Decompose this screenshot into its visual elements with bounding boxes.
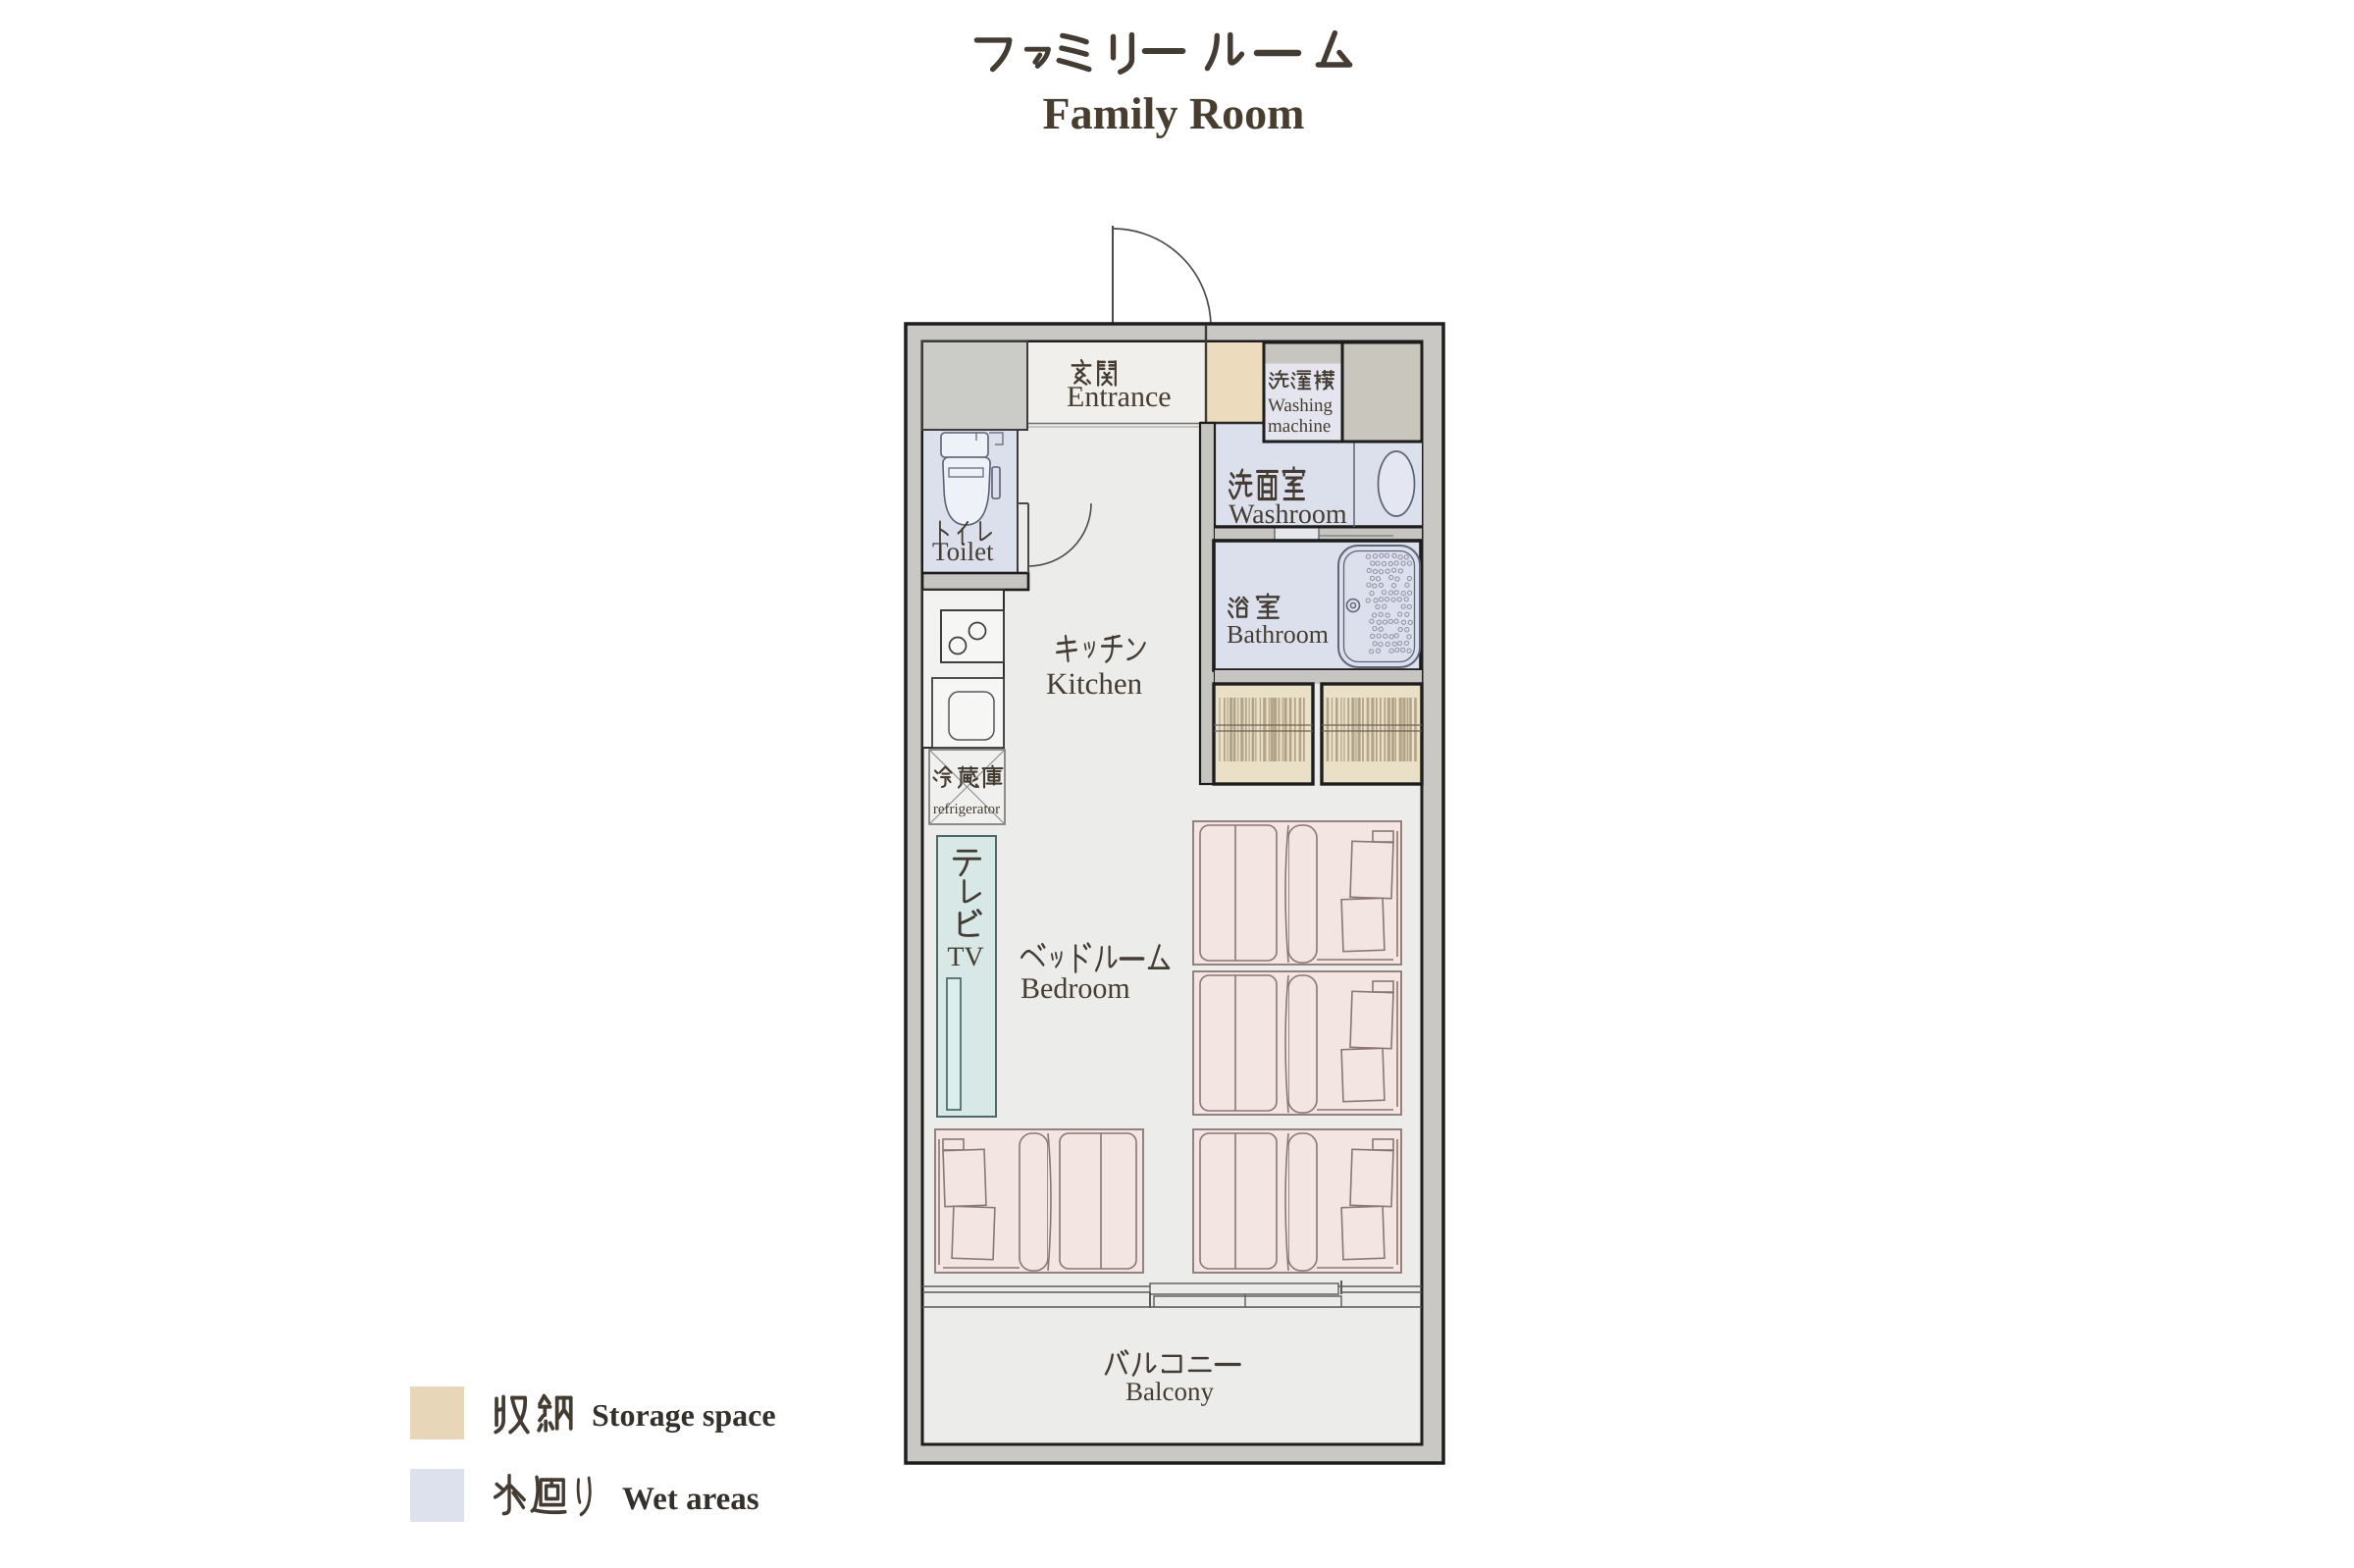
svg-text:Bathroom: Bathroom <box>1227 620 1329 649</box>
svg-text:Storage space: Storage space <box>592 1397 776 1434</box>
svg-text:Family Room: Family Room <box>1042 88 1304 138</box>
svg-text:Kitchen: Kitchen <box>1046 666 1143 701</box>
svg-text:Bedroom: Bedroom <box>1020 972 1130 1005</box>
svg-text:refrigerator: refrigerator <box>933 802 1000 817</box>
svg-text:TV: TV <box>947 942 983 972</box>
svg-text:Balcony: Balcony <box>1125 1377 1214 1406</box>
svg-text:Entrance: Entrance <box>1067 381 1172 413</box>
svg-text:machine: machine <box>1268 416 1331 437</box>
svg-text:Toilet: Toilet <box>932 537 994 566</box>
svg-text:Washing: Washing <box>1268 395 1334 416</box>
svg-text:Wet areas: Wet areas <box>622 1482 759 1517</box>
svg-text:Washroom: Washroom <box>1229 499 1347 530</box>
